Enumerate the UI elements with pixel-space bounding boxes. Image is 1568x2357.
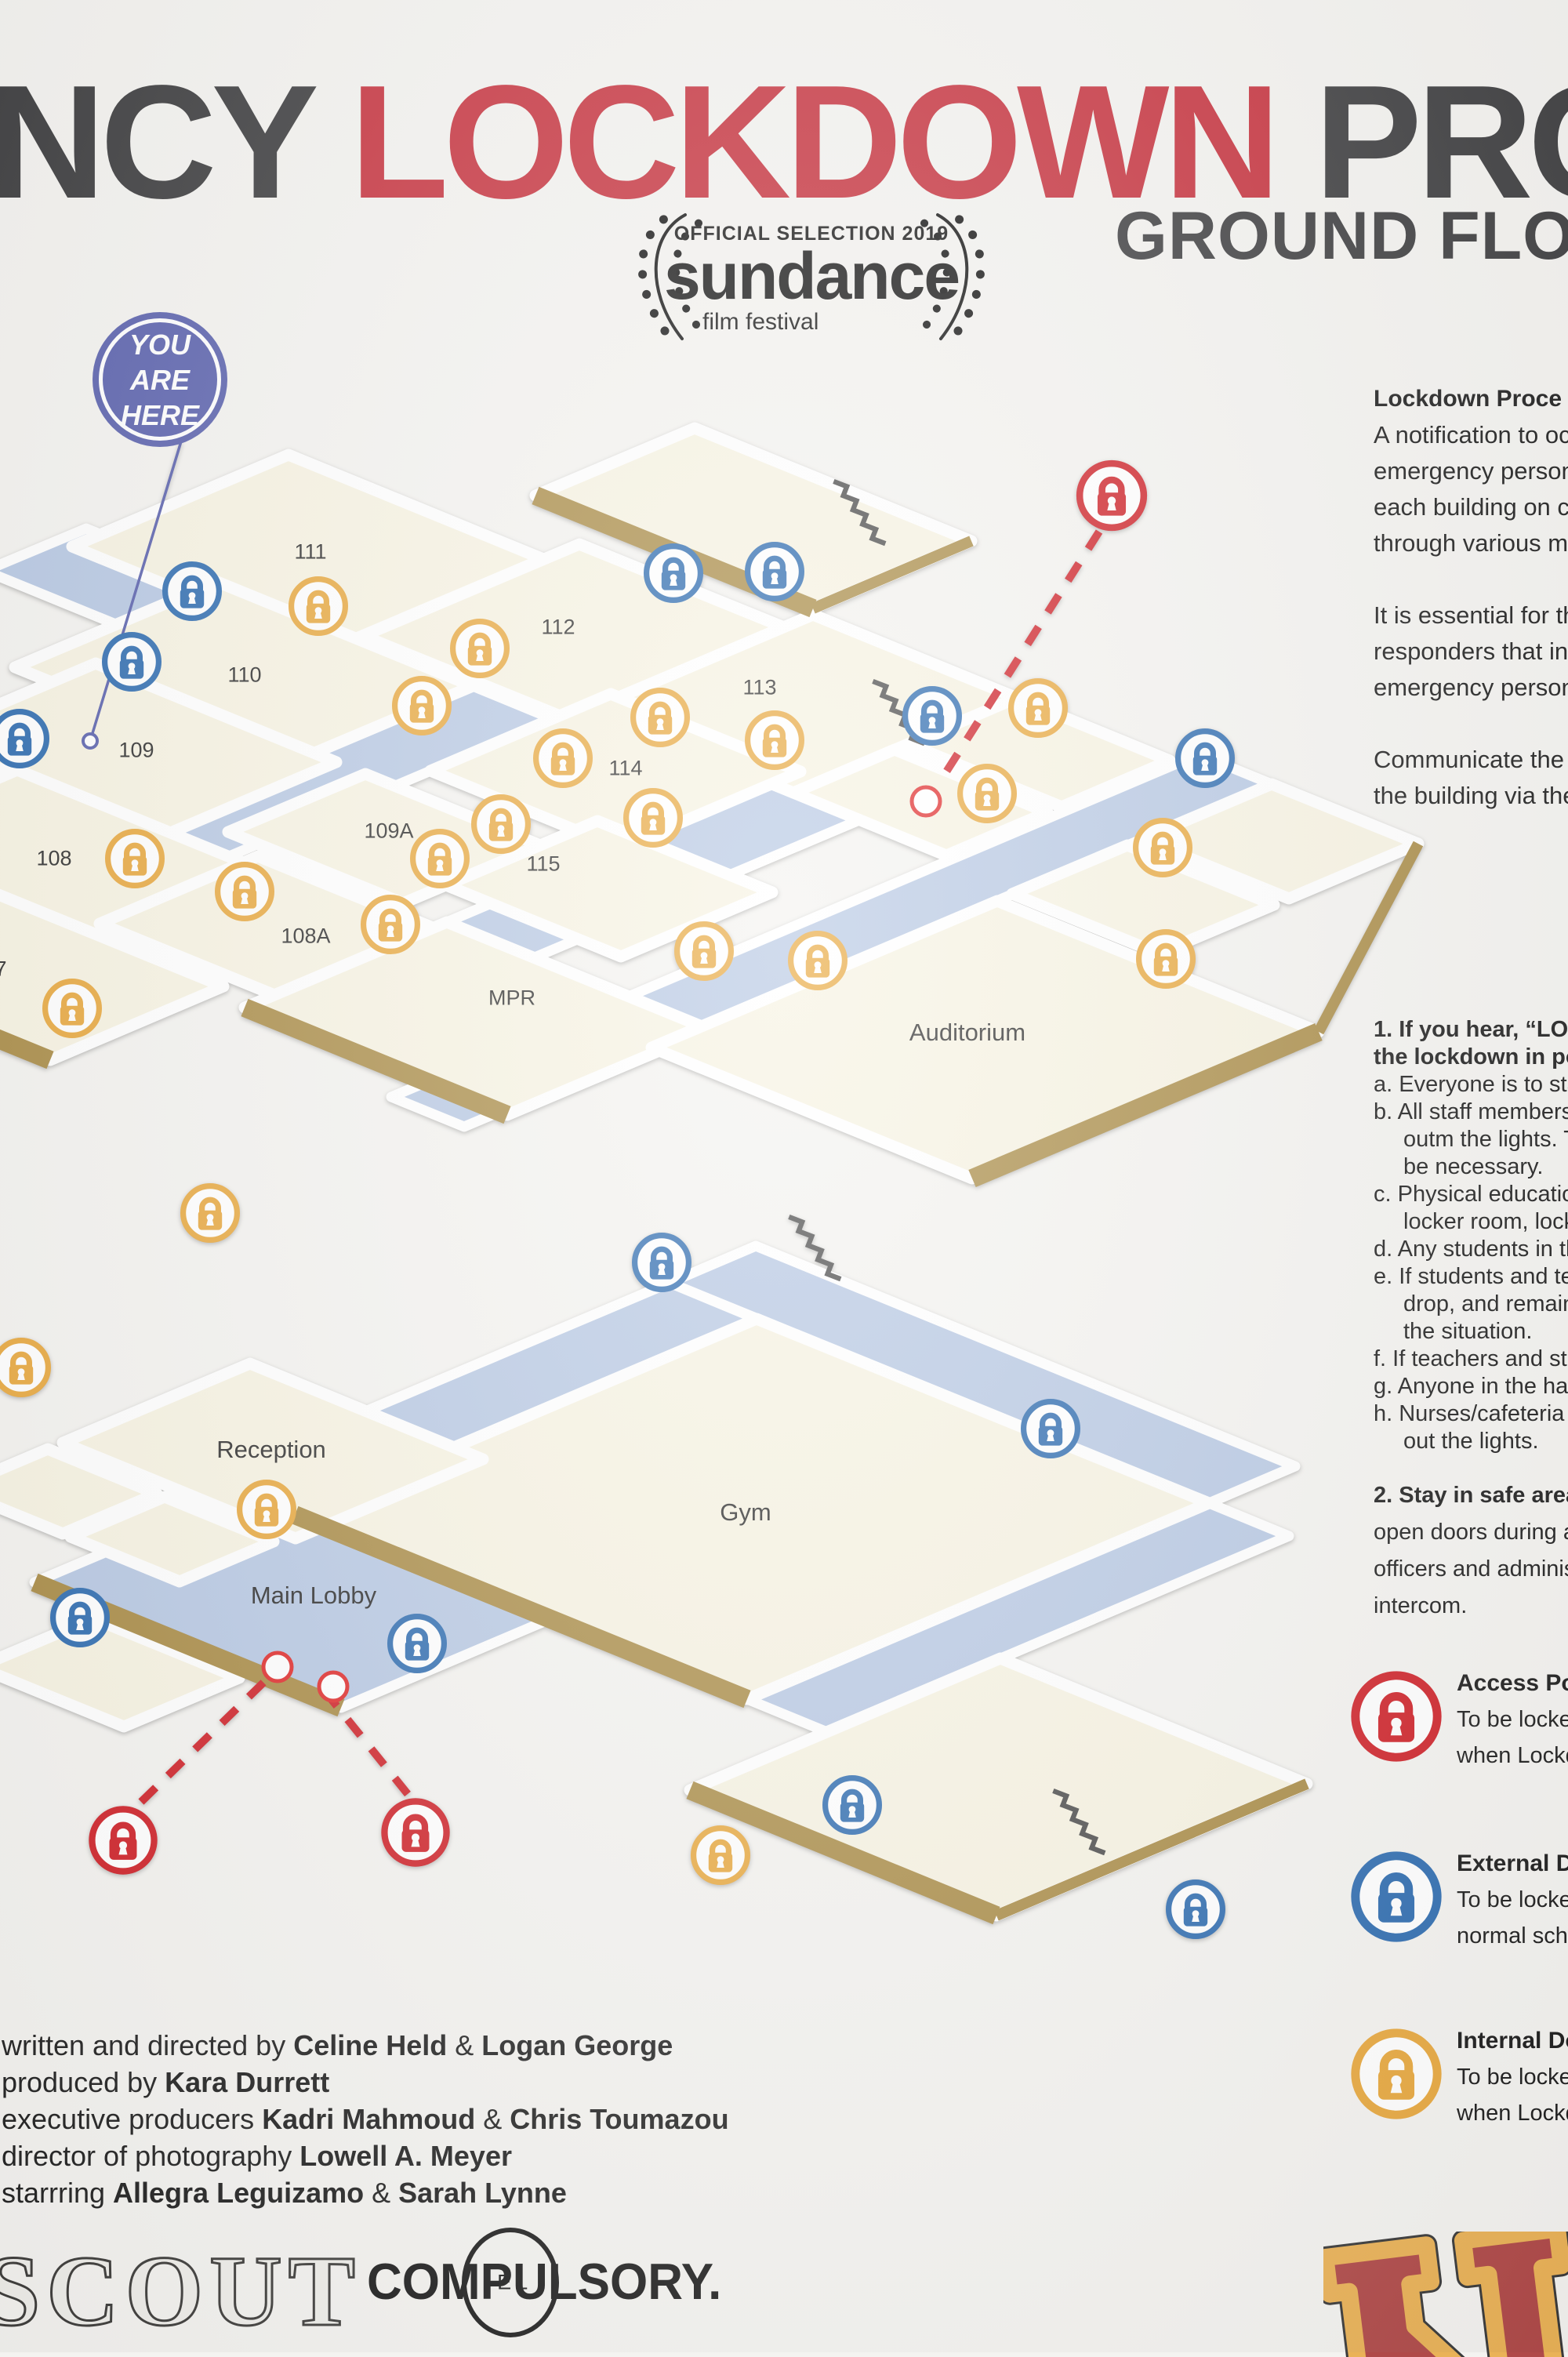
legend-line: To be locked	[1457, 1882, 1568, 1918]
legend-line: To be locke	[1457, 1701, 1568, 1738]
procedures-text-line: responders that ind	[1374, 634, 1568, 670]
title-fragment-left: NCY	[0, 52, 350, 232]
procedures-column: Lockdown Proce A notification to occemer…	[1374, 381, 1568, 814]
procedures-text-line: Communicate the n	[1374, 742, 1568, 778]
procedures-step-line: the situation.	[1374, 1318, 1568, 1346]
you-are-here-badge: YOU ARE HERE	[93, 312, 227, 447]
credit-name: Chris Toumazou	[510, 2103, 728, 2135]
credit-name: Kara Durrett	[165, 2066, 329, 2098]
red-lock-icon	[1080, 463, 1144, 528]
procedures-step-line: h. Nurses/cafeteria w	[1374, 1400, 1568, 1428]
credit-role: written and directed by	[2, 2029, 293, 2061]
yellow-lock-icon	[1139, 932, 1193, 986]
procedures-step-line: g. Anyone in the hal	[1374, 1373, 1568, 1400]
yellow-lock-icon	[45, 982, 100, 1036]
legend-line: To be locked	[1457, 2059, 1568, 2095]
procedures-text-line: each building on ca	[1374, 489, 1568, 525]
procedures-text-line: emergency personn	[1374, 453, 1568, 489]
credit-role: produced by	[2, 2066, 165, 2098]
procedures-heading: Lockdown Proce	[1374, 381, 1568, 417]
yellow-lock-icon	[218, 865, 272, 919]
yellow-lock-icon	[694, 1829, 748, 1883]
yellow-lock-icon	[960, 767, 1014, 821]
legend-title: Internal Doo	[1457, 2023, 1568, 2059]
blue-lock-icon	[1024, 1402, 1078, 1456]
yellow-lock-icon	[626, 791, 681, 845]
el-logo: EL	[462, 2228, 559, 2337]
access-point-lock-icon	[1345, 1665, 1447, 1767]
yellow-lock-icon	[748, 714, 802, 768]
laurel-festival-name: sundance	[627, 238, 996, 314]
floor-plan-geometry	[0, 428, 1418, 1936]
credit-name: Allegra Leguizamo	[113, 2177, 364, 2209]
credit-line: director of photography Lowell A. Meyer	[2, 2137, 729, 2174]
credit-line: executive producers Kadri Mahmoud & Chri…	[2, 2101, 729, 2137]
credit-line: written and directed by Celine Held & Lo…	[2, 2027, 729, 2064]
blue-lock-icon	[390, 1617, 445, 1671]
blue-lock-icon	[165, 565, 220, 619]
procedures-step-line: a. Everyone is to sta	[1374, 1071, 1568, 1099]
yellow-lock-icon	[474, 797, 528, 852]
blue-lock-icon	[0, 712, 46, 766]
credit-name: Logan George	[481, 2029, 673, 2061]
yellow-lock-icon	[1136, 821, 1190, 875]
page-subtitle: GROUND FLO	[1115, 202, 1568, 270]
procedures-step-line: d. Any students in th	[1374, 1236, 1568, 1263]
yellow-lock-icon	[0, 1341, 48, 1395]
legend-internal-doors: Internal Doo To be locked when Lockd	[1345, 2023, 1568, 2180]
door-marker	[263, 1653, 292, 1681]
red-lock-icon	[384, 1801, 446, 1863]
procedures-step-line: be necessary.	[1374, 1153, 1568, 1181]
internal-door-lock-icon	[1345, 2023, 1447, 2125]
procedures-step-line: c. Physical educatio	[1374, 1181, 1568, 1208]
credit-name: Kadri Mahmoud	[262, 2103, 475, 2135]
yellow-lock-icon	[183, 1186, 238, 1240]
credit-name: Sarah Lynne	[398, 2177, 567, 2209]
procedures-step-line: b. All staff members	[1374, 1099, 1568, 1126]
yellow-lock-icon	[1011, 681, 1065, 735]
scout-logo: SCOUT	[0, 2241, 361, 2341]
credit-role: &	[475, 2103, 510, 2135]
legend-line: when Lockd	[1457, 2095, 1568, 2131]
blue-lock-icon	[53, 1591, 107, 1645]
procedures-text-line: the building via the	[1374, 778, 1568, 814]
legend-title: Access Po	[1457, 1665, 1568, 1701]
yellow-lock-icon	[677, 924, 731, 979]
yellow-lock-icon	[395, 679, 449, 733]
credit-name: Lowell A. Meyer	[299, 2140, 512, 2172]
external-door-lock-icon	[1345, 1846, 1447, 1948]
yellow-lock-icon	[453, 622, 507, 676]
procedures-step-line: locker room, lock	[1374, 1208, 1568, 1236]
procedures-text-line: through various me	[1374, 525, 1568, 561]
blue-lock-icon	[906, 689, 960, 743]
procedures-paragraph-2: It is essential for theresponders that i…	[1374, 597, 1568, 706]
yah-line2: ARE	[121, 362, 199, 398]
procedures-paragraph-3: Communicate the nthe building via the	[1374, 742, 1568, 814]
blue-lock-icon	[635, 1236, 689, 1290]
procedures-steps-list: 1. If you hear, “LOCthe lockdown in poa.…	[1374, 1016, 1568, 1625]
credit-role: &	[364, 2177, 398, 2209]
credit-role: starrring	[2, 2177, 113, 2209]
yellow-lock-icon	[536, 732, 590, 786]
procedures-step-line: e. If students and te	[1374, 1263, 1568, 1291]
legend-title: External Do	[1457, 1846, 1568, 1882]
you-are-here-dot	[83, 734, 97, 748]
blue-lock-icon	[105, 635, 159, 689]
procedures-step-line: f. If teachers and stu	[1374, 1346, 1568, 1373]
yellow-lock-icon	[413, 832, 467, 886]
credit-role: &	[447, 2029, 481, 2061]
yellow-lock-icon	[292, 579, 346, 634]
yellow-lock-icon	[240, 1483, 294, 1537]
blue-lock-icon	[647, 547, 701, 601]
legend-line: normal scho	[1457, 1918, 1568, 1954]
yellow-lock-icon	[633, 691, 688, 745]
procedures-text-line: A notification to occ	[1374, 417, 1568, 453]
legend-line: when Lockd	[1457, 1738, 1568, 1774]
credit-line: produced by Kara Durrett	[2, 2064, 729, 2101]
film-credits: written and directed by Celine Held & Lo…	[2, 2027, 729, 2211]
yellow-lock-icon	[108, 832, 162, 886]
yellow-lock-icon	[364, 898, 418, 952]
door-marker	[912, 787, 940, 815]
procedures-step-line: outm the lights. Th	[1374, 1126, 1568, 1153]
blue-lock-icon	[748, 545, 802, 599]
yah-line3: HERE	[121, 398, 199, 433]
procedures-step-line: open doors during a	[1374, 1514, 1568, 1551]
procedures-step-line: intercom.	[1374, 1588, 1568, 1625]
steps-spacer	[1374, 1455, 1568, 1477]
procedures-step-line: the lockdown in po	[1374, 1044, 1568, 1071]
procedures-step-line: out the lights.	[1374, 1428, 1568, 1455]
el-logo-text: EL	[497, 2271, 532, 2295]
credit-role: executive producers	[2, 2103, 262, 2135]
procedures-step-line: officers and adminis	[1374, 1551, 1568, 1588]
procedures-step-line: 2. Stay in safe area	[1374, 1477, 1568, 1514]
laurel-festival-sub: film festival	[702, 309, 818, 336]
procedures-step-line: 1. If you hear, “LOC	[1374, 1016, 1568, 1044]
legend-access-points: Access Po To be locke when Lockd	[1345, 1665, 1568, 1822]
procedures-text-line: It is essential for the	[1374, 597, 1568, 634]
credit-role: director of photography	[2, 2140, 299, 2172]
door-marker	[319, 1672, 347, 1701]
collegiate-letter-n	[1323, 2232, 1568, 2357]
yellow-lock-icon	[791, 934, 845, 988]
red-lock-icon	[92, 1809, 154, 1871]
legend-external-doors: External Do To be locked normal scho	[1345, 1846, 1568, 2003]
yah-line1: YOU	[121, 327, 199, 362]
credit-name: Celine Held	[293, 2029, 447, 2061]
blue-lock-icon	[826, 1778, 880, 1832]
blue-lock-icon	[1169, 1883, 1223, 1937]
procedures-paragraph-1: A notification to occemergency personnea…	[1374, 417, 1568, 561]
blue-lock-icon	[1178, 732, 1232, 786]
procedures-text-line: emergency personn	[1374, 670, 1568, 706]
procedures-step-line: drop, and remain	[1374, 1291, 1568, 1318]
floor-plan-map	[0, 0, 1568, 2352]
credit-line: starrring Allegra Leguizamo & Sarah Lynn…	[2, 2174, 729, 2211]
sundance-laurel: OFFICIAL SELECTION 2019 sundance film fe…	[627, 205, 996, 350]
